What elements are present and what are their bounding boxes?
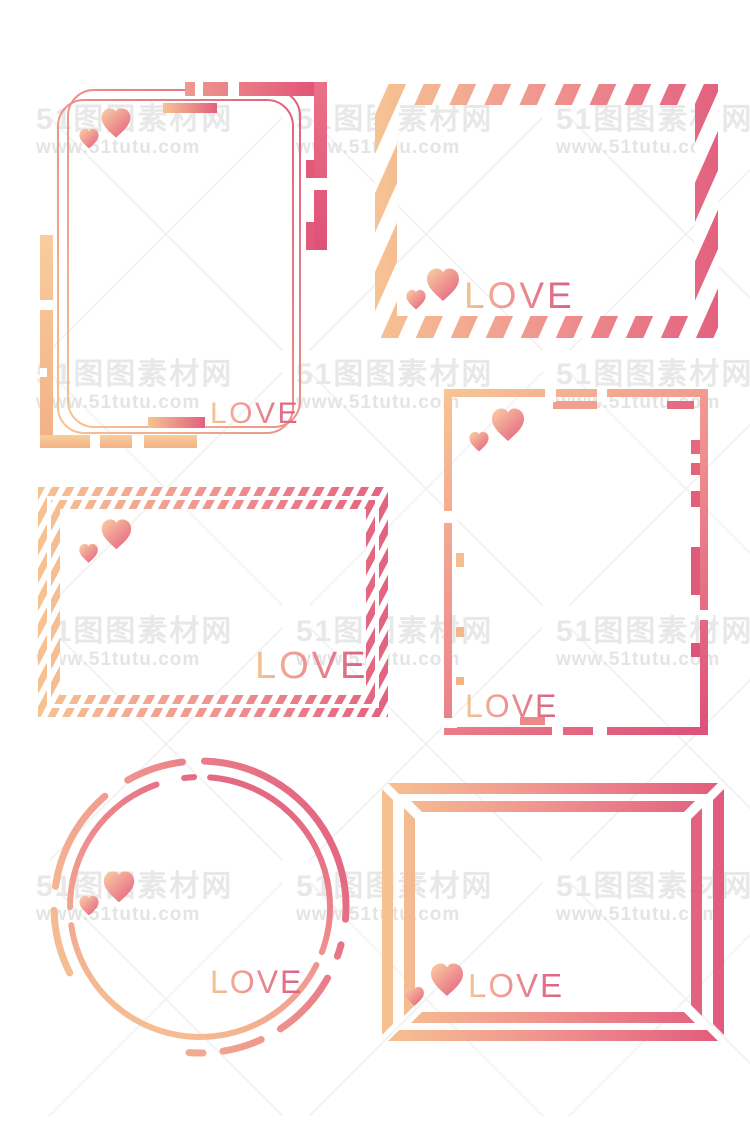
- heart-icon: [431, 964, 463, 997]
- heart-icon: [102, 519, 131, 549]
- heart-small-icon: [406, 290, 425, 310]
- beveled-double-frame: LOVE: [378, 779, 728, 1049]
- love-label: LOVE: [210, 964, 303, 1000]
- frame-graphic: LOVE: [443, 388, 713, 738]
- outer-circle: [1, 708, 400, 1107]
- frame-graphic: LOVE: [33, 482, 393, 722]
- heart-icon: [427, 269, 459, 302]
- love-label: LOVE: [255, 645, 368, 687]
- love-label: LOVE: [465, 688, 558, 724]
- canvas: 51图图素材网www.51tutu.com51图图素材网www.51tutu.c…: [0, 0, 750, 1129]
- heart-icon: [492, 409, 524, 442]
- notched-tech-frame: LOVE: [443, 388, 713, 738]
- love-label: LOVE: [468, 967, 564, 1004]
- hatched-border-frame: LOVE: [33, 482, 393, 722]
- heart-small-icon: [79, 896, 98, 916]
- striped-envelope-frame: LOVE: [372, 82, 722, 347]
- heart-small-icon: [469, 432, 488, 452]
- frame-graphic: LOVE: [30, 78, 330, 458]
- frame-graphic: LOVE: [378, 779, 728, 1049]
- heart-icon: [104, 871, 134, 902]
- watermark-title: 51图图素材网: [556, 359, 750, 391]
- rounded-card-frame: LOVE: [30, 78, 330, 458]
- dashed-circle-frame: LOVE: [47, 755, 357, 1065]
- outline-outer: [68, 90, 300, 427]
- love-label: LOVE: [210, 397, 300, 430]
- heart-icon: [102, 108, 131, 137]
- heart-small-icon: [79, 544, 98, 563]
- frame-graphic: LOVE: [47, 755, 357, 1065]
- outline-inner: [58, 100, 293, 433]
- love-label: LOVE: [464, 275, 575, 316]
- frame-graphic: LOVE: [372, 82, 722, 347]
- heart-small-icon: [79, 129, 98, 149]
